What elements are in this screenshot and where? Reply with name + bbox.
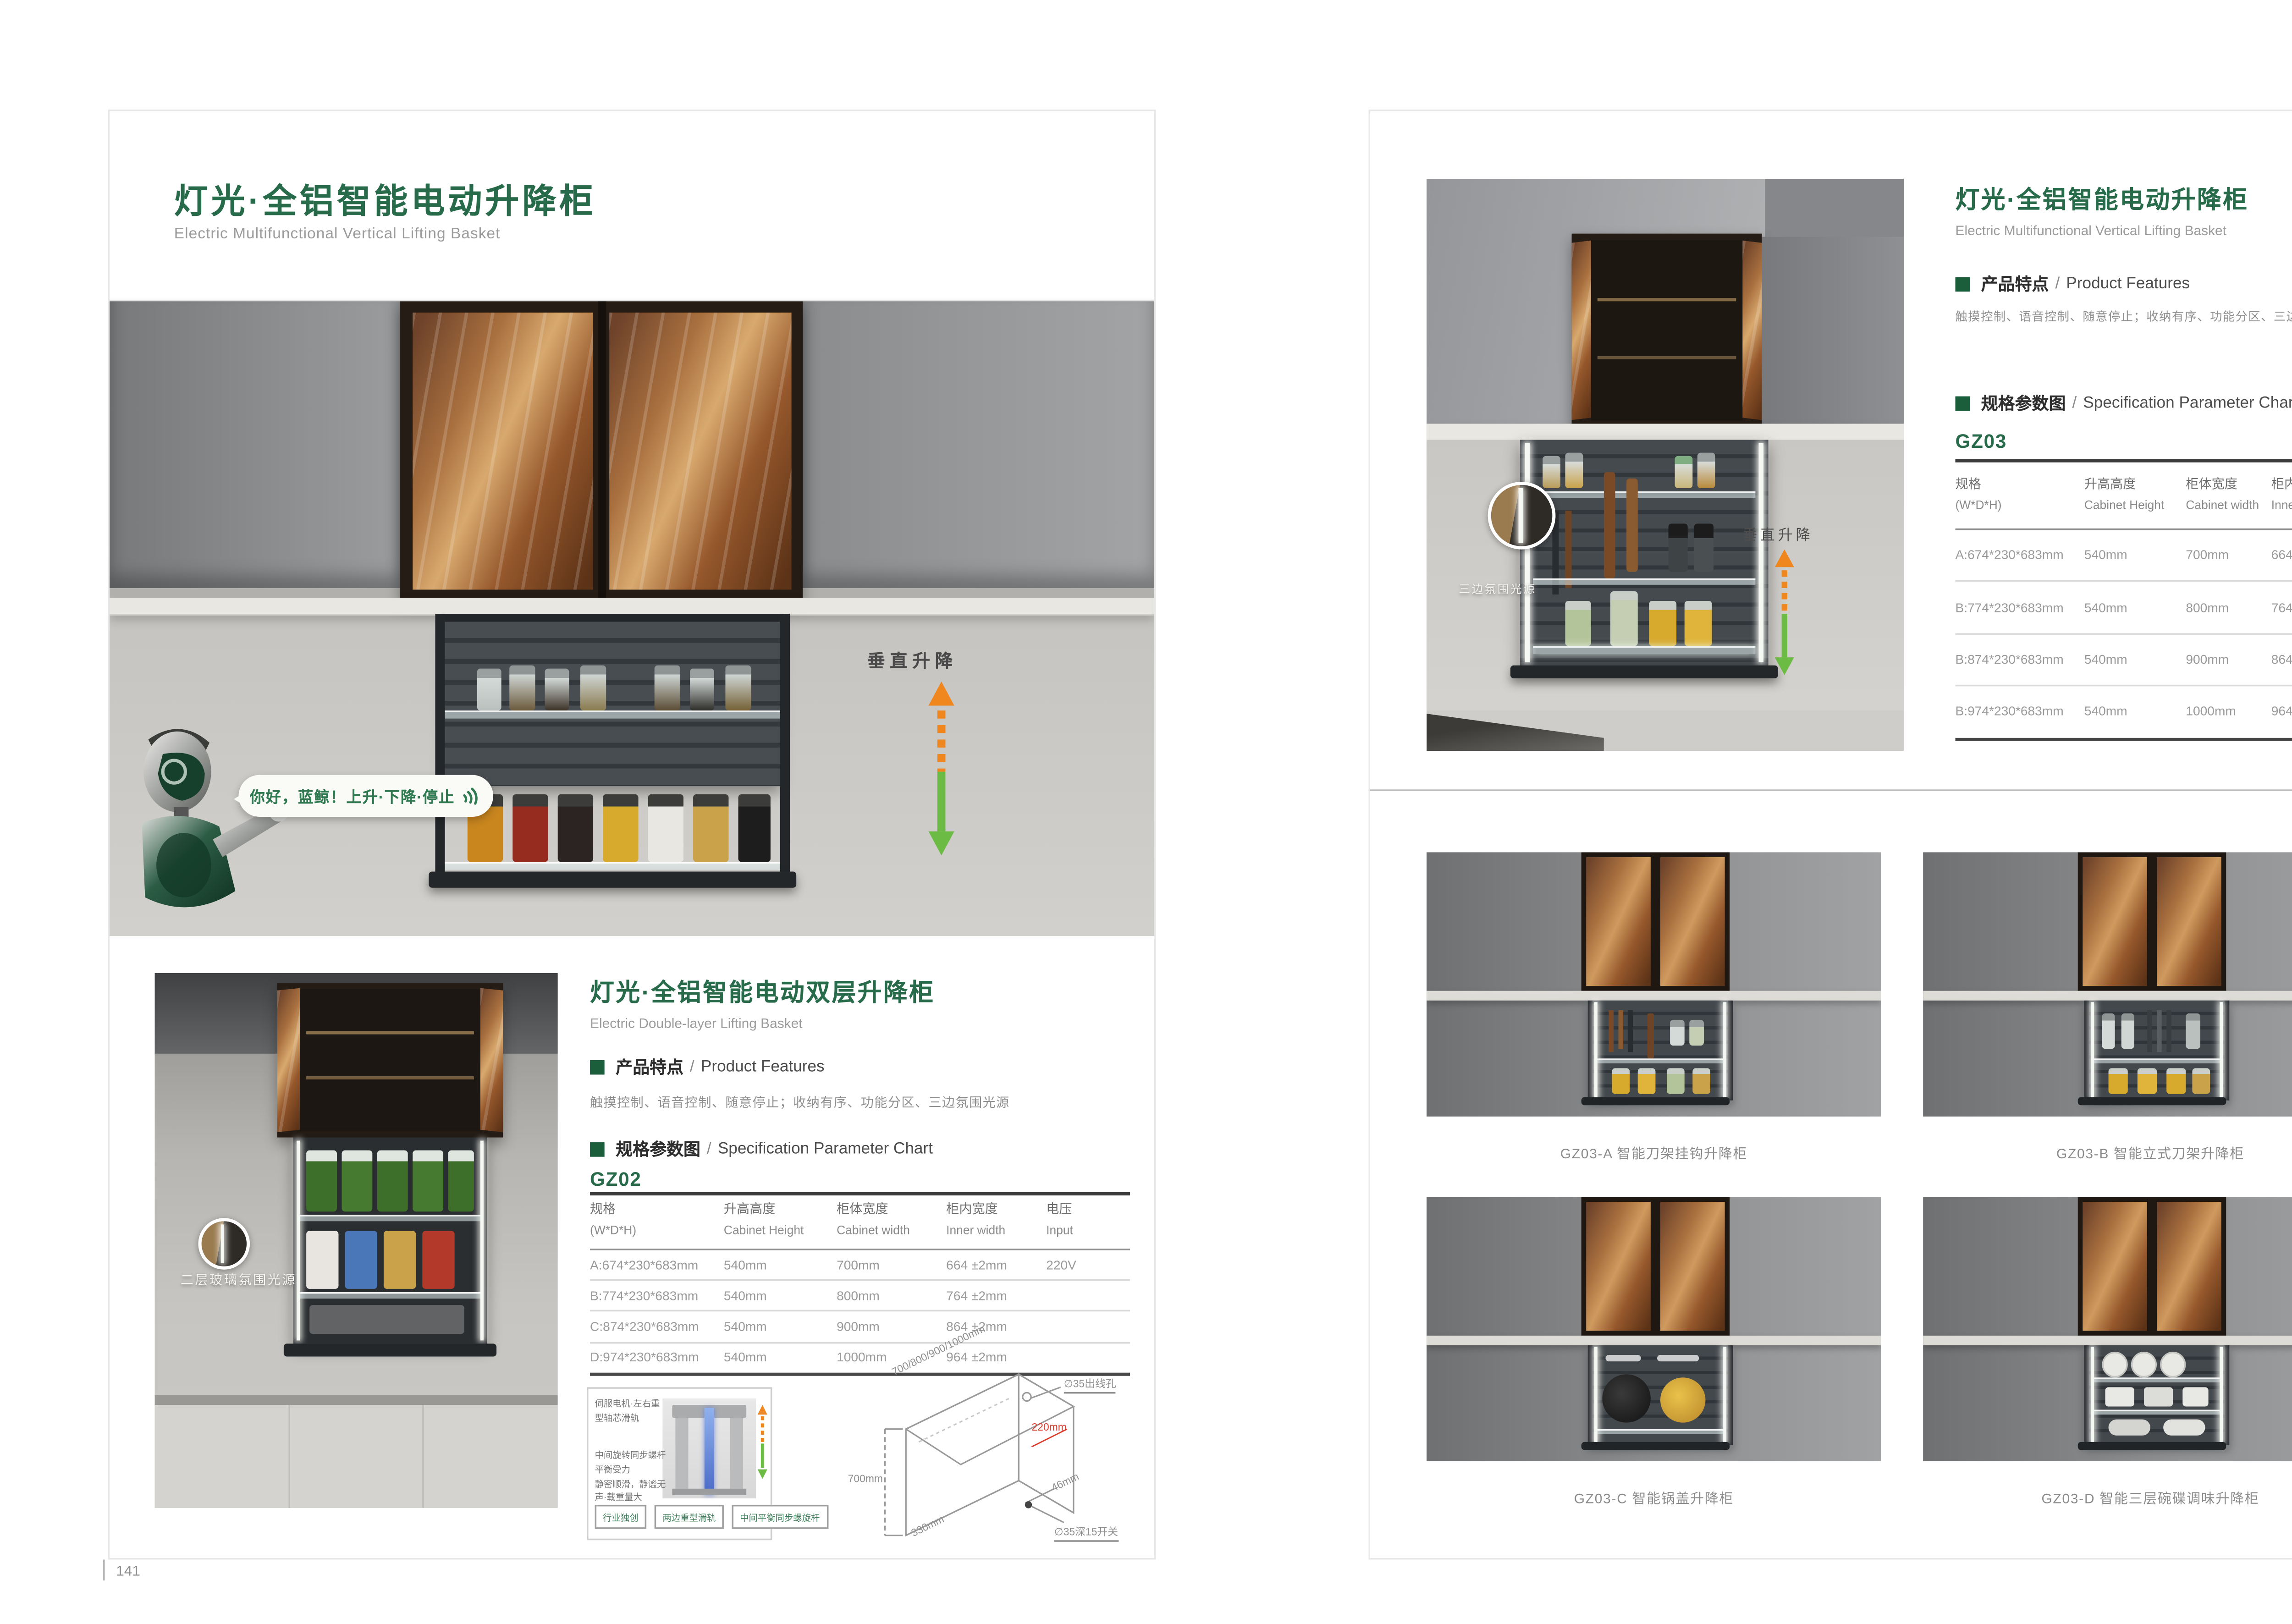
table-header-cell: 电压Input <box>1046 1200 1130 1238</box>
lift-direction-label: 垂直升降 <box>867 648 958 673</box>
photo-callout-label: 二层玻璃氛围光源 <box>181 1271 297 1289</box>
table-header-cell: 柜内宽度Inner width <box>946 1200 1046 1238</box>
green-square-bullet <box>1956 277 1970 292</box>
table-cell: A:674*230*683mm <box>590 1258 724 1272</box>
model-underline <box>590 1192 1130 1195</box>
table-cell: 700mm <box>2186 548 2271 563</box>
lift-arrows-icon <box>1772 550 1797 675</box>
countertop-ledge <box>110 598 1154 616</box>
basket-top-rail <box>442 614 783 622</box>
page-title: 灯光·全铝智能电动升降柜 <box>174 176 596 224</box>
product2-subtitle: Electric Double-layer Lifting Basket <box>590 1015 803 1031</box>
product2-title: 灯光·全铝智能电动双层升降柜 <box>590 975 935 1009</box>
table-cell: 800mm <box>2186 600 2271 615</box>
grid-caption-gz03-a: GZ03-A 智能刀架挂钩升降柜 <box>1427 1144 1881 1163</box>
green-square-bullet <box>590 1060 605 1075</box>
page-number-bar-left <box>103 1559 105 1580</box>
magnifier-callout-icon <box>1488 482 1556 550</box>
table-cell: B:774*230*683mm <box>590 1288 724 1303</box>
page-left: 灯光·全铝智能电动升降柜 Electric Multifunctional Ve… <box>108 110 1156 1559</box>
table-cell: 540mm <box>724 1350 837 1365</box>
table-cell: 220V <box>1046 1258 1130 1272</box>
table-cell: B:974*230*683mm <box>1956 705 2084 719</box>
green-square-bullet <box>1956 396 1970 411</box>
features-heading: 产品特点 / Product Features <box>1956 272 2190 297</box>
grid-photo-gz03-d <box>1923 1197 2292 1461</box>
diagram-note-2: 中间旋转同步螺杆平衡受力 静密顺滑，静谧无声·载重量大 <box>595 1450 666 1507</box>
table-cell: 540mm <box>2084 652 2186 667</box>
table-cell: 1000mm <box>2186 705 2271 719</box>
basket-bottom-rail <box>429 872 796 888</box>
table-cell: 540mm <box>2084 705 2186 719</box>
mechanism-diagram: 伺服电机·左右重型轴芯滑轨 中间旋转同步螺杆平衡受力 静密顺滑，静谧无声·载重量… <box>587 1387 772 1540</box>
double-layer-basket <box>293 1138 487 1344</box>
counter-edge <box>155 1395 558 1405</box>
page-subtitle: Electric Multifunctional Vertical Liftin… <box>1956 222 2226 238</box>
double-layer-product-photo: 二层玻璃氛围光源 <box>155 973 558 1508</box>
grid-photo-gz03-c <box>1427 1197 1881 1461</box>
table-cell: C:874*230*683mm <box>590 1320 724 1334</box>
spec-heading: 规格参数图 / Specification Parameter Chart <box>590 1138 933 1162</box>
table-row: B:774*230*683mm540mm800mm764 ±2mm <box>590 1281 1130 1312</box>
magnifier-callout-icon <box>198 1218 250 1269</box>
table-cell: B:774*230*683mm <box>1956 600 2084 615</box>
table-row: C:874*230*683mm540mm900mm864 ±2mm <box>590 1312 1130 1343</box>
table-cell: 664 ±2mm <box>2271 548 2292 563</box>
page-subtitle: Electric Multifunctional Vertical Liftin… <box>174 226 501 243</box>
model-code: GZ03 <box>1956 430 2007 452</box>
lifting-basket <box>1520 440 1769 666</box>
hero-photo: 垂直升降 <box>110 301 1154 936</box>
spatula <box>1604 472 1615 578</box>
dim-inner: 220mm <box>1032 1423 1067 1434</box>
spec-table-gz03: 规格(W*D*H)升高高度Cabinet Height柜体宽度Cabinet w… <box>1956 475 2292 740</box>
vertical-lift-product-photo: 三边氛围光源 垂直升降 <box>1427 179 1904 751</box>
spec-table-gz02: 规格(W*D*H)升高高度Cabinet Height柜体宽度Cabinet w… <box>590 1200 1130 1376</box>
page-number-left: 141 <box>116 1563 140 1579</box>
table-row: B:974*230*683mm540mm1000mm964 ±2mm <box>1956 687 2292 740</box>
table-row: B:874*230*683mm540mm900mm864 ±2mm <box>1956 634 2292 687</box>
page-title: 灯光·全铝智能电动升降柜 <box>1956 182 2249 216</box>
gray-cabinet-left <box>110 301 400 588</box>
base-cabinet-band <box>155 1405 558 1508</box>
page-right: 三边氛围光源 垂直升降 灯光·全铝智能电动升降柜 Electric Multif… <box>1369 110 2292 1559</box>
bronze-glass-cabinet <box>400 301 803 601</box>
table-header-cell: 规格(W*D*H) <box>1956 475 2084 512</box>
table-header-cell: 升高高度Cabinet Height <box>724 1200 837 1238</box>
catalog-spread: 灯光·全铝智能电动升降柜 Electric Multifunctional Ve… <box>0 0 2292 1624</box>
diagram-note-1: 伺服电机·左右重型轴芯滑轨 <box>595 1398 666 1427</box>
table-cell: 864 ±2mm <box>2271 652 2292 667</box>
table-cell: 900mm <box>837 1320 946 1334</box>
table-cell: 800mm <box>837 1288 946 1303</box>
table-header-cell: 柜体宽度Cabinet width <box>837 1200 946 1238</box>
glass-shelf <box>445 710 780 719</box>
hole-bottom-label: ∅35深15开关 <box>1054 1523 1118 1542</box>
table-cell: 764 ±2mm <box>946 1288 1046 1303</box>
features-text: 触摸控制、语音控制、随意停止；收纳有序、功能分区、三边氛围光源 <box>590 1094 1138 1112</box>
table-cell: 864 ±2mm <box>946 1320 1046 1334</box>
lift-direction-label: 垂直升降 <box>1742 523 1813 545</box>
table-header-cell: 升高高度Cabinet Height <box>2084 475 2186 512</box>
dimension-sketch: 700/800/900/1000mm 700mm 330mm 220mm 46m… <box>864 1355 1138 1552</box>
table-header-cell: 柜内宽度Inner width <box>2271 475 2292 512</box>
table-header-cell: 规格(W*D*H) <box>590 1200 724 1238</box>
grid-caption-gz03-d: GZ03-D 智能三层碗碟调味升降柜 <box>1923 1489 2292 1508</box>
model-underline <box>1956 459 2292 462</box>
photo-callout-label: 三边氛围光源 <box>1459 582 1536 598</box>
table-header-cell: 柜体宽度Cabinet width <box>2186 475 2271 512</box>
table-cell: 700mm <box>837 1258 946 1272</box>
table-cell: 540mm <box>2084 548 2186 563</box>
section-divider <box>1370 789 2292 791</box>
table-cell: 540mm <box>724 1320 837 1334</box>
green-square-bullet <box>590 1142 605 1157</box>
lift-arrows-icon <box>924 682 959 856</box>
gray-cabinet-right <box>803 301 1154 588</box>
table-cell <box>1046 1288 1130 1303</box>
diagram-tags: 行业独创 两边重型滑轨 中间平衡同步螺旋杆 <box>595 1505 828 1529</box>
features-text: 触摸控制、语音控制、随意停止；收纳有序、功能分区、三边氛围光源 <box>1956 308 2292 325</box>
dim-height: 700mm <box>848 1474 883 1486</box>
model-code: GZ02 <box>590 1168 642 1190</box>
gray-cabinet-right <box>1762 237 1904 427</box>
table-row: A:674*230*683mm540mm700mm664 ±2mm220V <box>1956 530 2292 582</box>
grid-caption-gz03-c: GZ03-C 智能锅盖升降柜 <box>1427 1489 1881 1508</box>
table-cell: 540mm <box>724 1258 837 1272</box>
spec-heading: 规格参数图 / Specification Parameter Chart <box>1956 391 2292 416</box>
bronze-open-cabinet <box>1572 234 1762 427</box>
table-cell <box>1046 1320 1130 1334</box>
countertop-ledge <box>1427 424 1904 441</box>
sound-waves-icon <box>461 786 482 807</box>
voice-command-text: 你好，蓝鲸！上升·下降·停止 <box>249 785 455 807</box>
table-cell: 764 ±2mm <box>2271 600 2292 615</box>
hole-top-label: ∅35出线孔 <box>1064 1374 1116 1393</box>
mini-lift-arrows-icon <box>756 1405 769 1479</box>
features-heading: 产品特点 / Product Features <box>590 1055 825 1079</box>
grid-caption-gz03-b: GZ03-B 智能立式刀架升降柜 <box>1923 1144 2292 1163</box>
grid-photo-gz03-a <box>1427 852 1881 1116</box>
table-row: A:674*230*683mm540mm700mm664 ±2mm220V <box>590 1250 1130 1281</box>
table-row: B:774*230*683mm540mm800mm764 ±2mm <box>1956 582 2292 634</box>
table-cell: 964 ±2mm <box>2271 705 2292 719</box>
voice-command-bubble: 你好，蓝鲸！上升·下降·停止 <box>238 775 493 817</box>
table-cell: 664 ±2mm <box>946 1258 1046 1272</box>
table-cell: B:874*230*683mm <box>1956 652 2084 667</box>
table-cell: 900mm <box>2186 652 2271 667</box>
grid-photo-gz03-b <box>1923 852 2292 1116</box>
table-cell: D:974*230*683mm <box>590 1350 724 1365</box>
table-cell: 540mm <box>724 1288 837 1303</box>
bronze-open-cabinet <box>277 983 503 1137</box>
robot-assistant <box>116 723 313 936</box>
table-cell: 540mm <box>2084 600 2186 615</box>
table-cell: A:674*230*683mm <box>1956 548 2084 563</box>
